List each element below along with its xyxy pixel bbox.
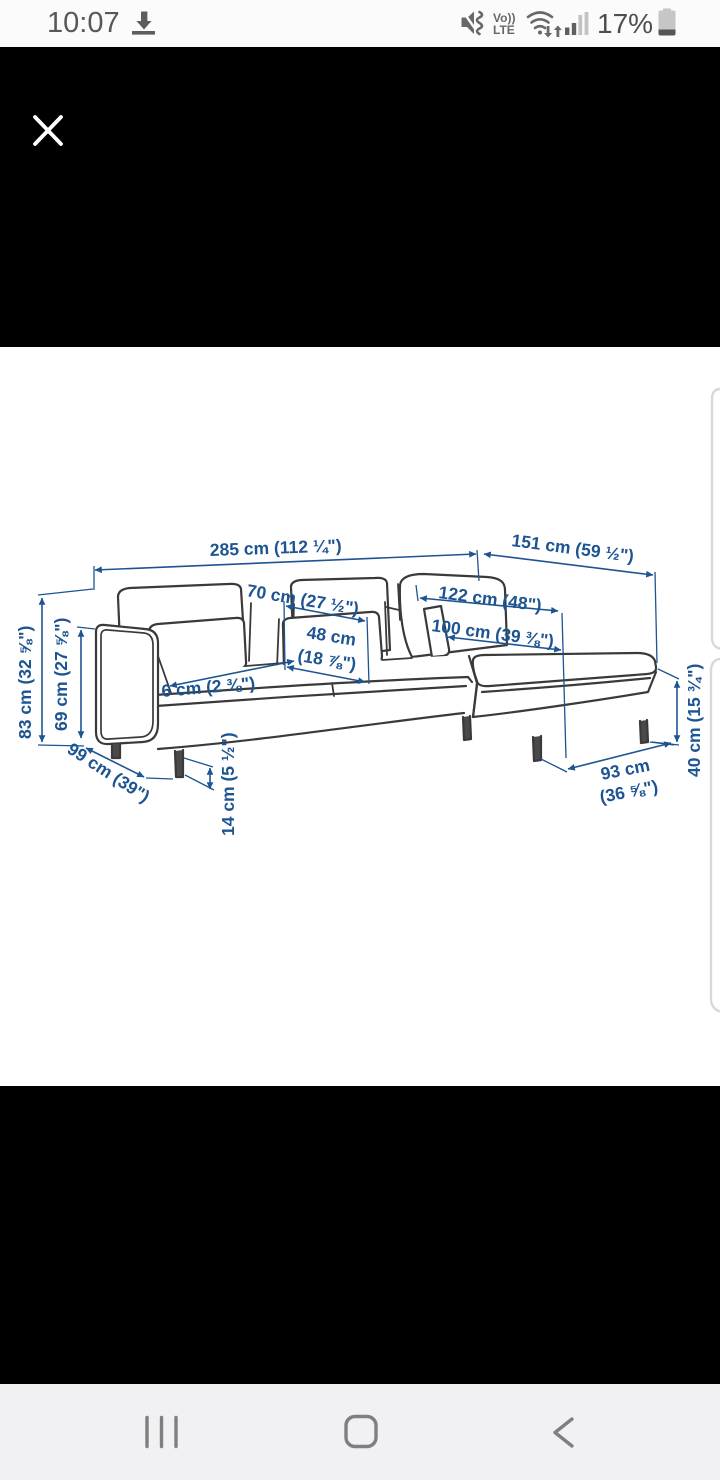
svg-text:40 cm (15 ¾"): 40 cm (15 ¾")	[684, 664, 704, 777]
svg-text:69 cm (27 ⅝"): 69 cm (27 ⅝")	[51, 618, 71, 731]
svg-text:83 cm (32 ⅝"): 83 cm (32 ⅝")	[15, 626, 35, 739]
svg-text:17%: 17%	[597, 8, 653, 39]
svg-text:151 cm (59 ½"): 151 cm (59 ½")	[510, 530, 635, 566]
svg-text:14 cm (5 ½"): 14 cm (5 ½")	[218, 732, 238, 836]
svg-text:285 cm (112 ¼"): 285 cm (112 ¼")	[209, 535, 341, 560]
svg-text:LTE: LTE	[493, 23, 515, 37]
svg-text:99 cm (39"): 99 cm (39")	[64, 739, 154, 807]
